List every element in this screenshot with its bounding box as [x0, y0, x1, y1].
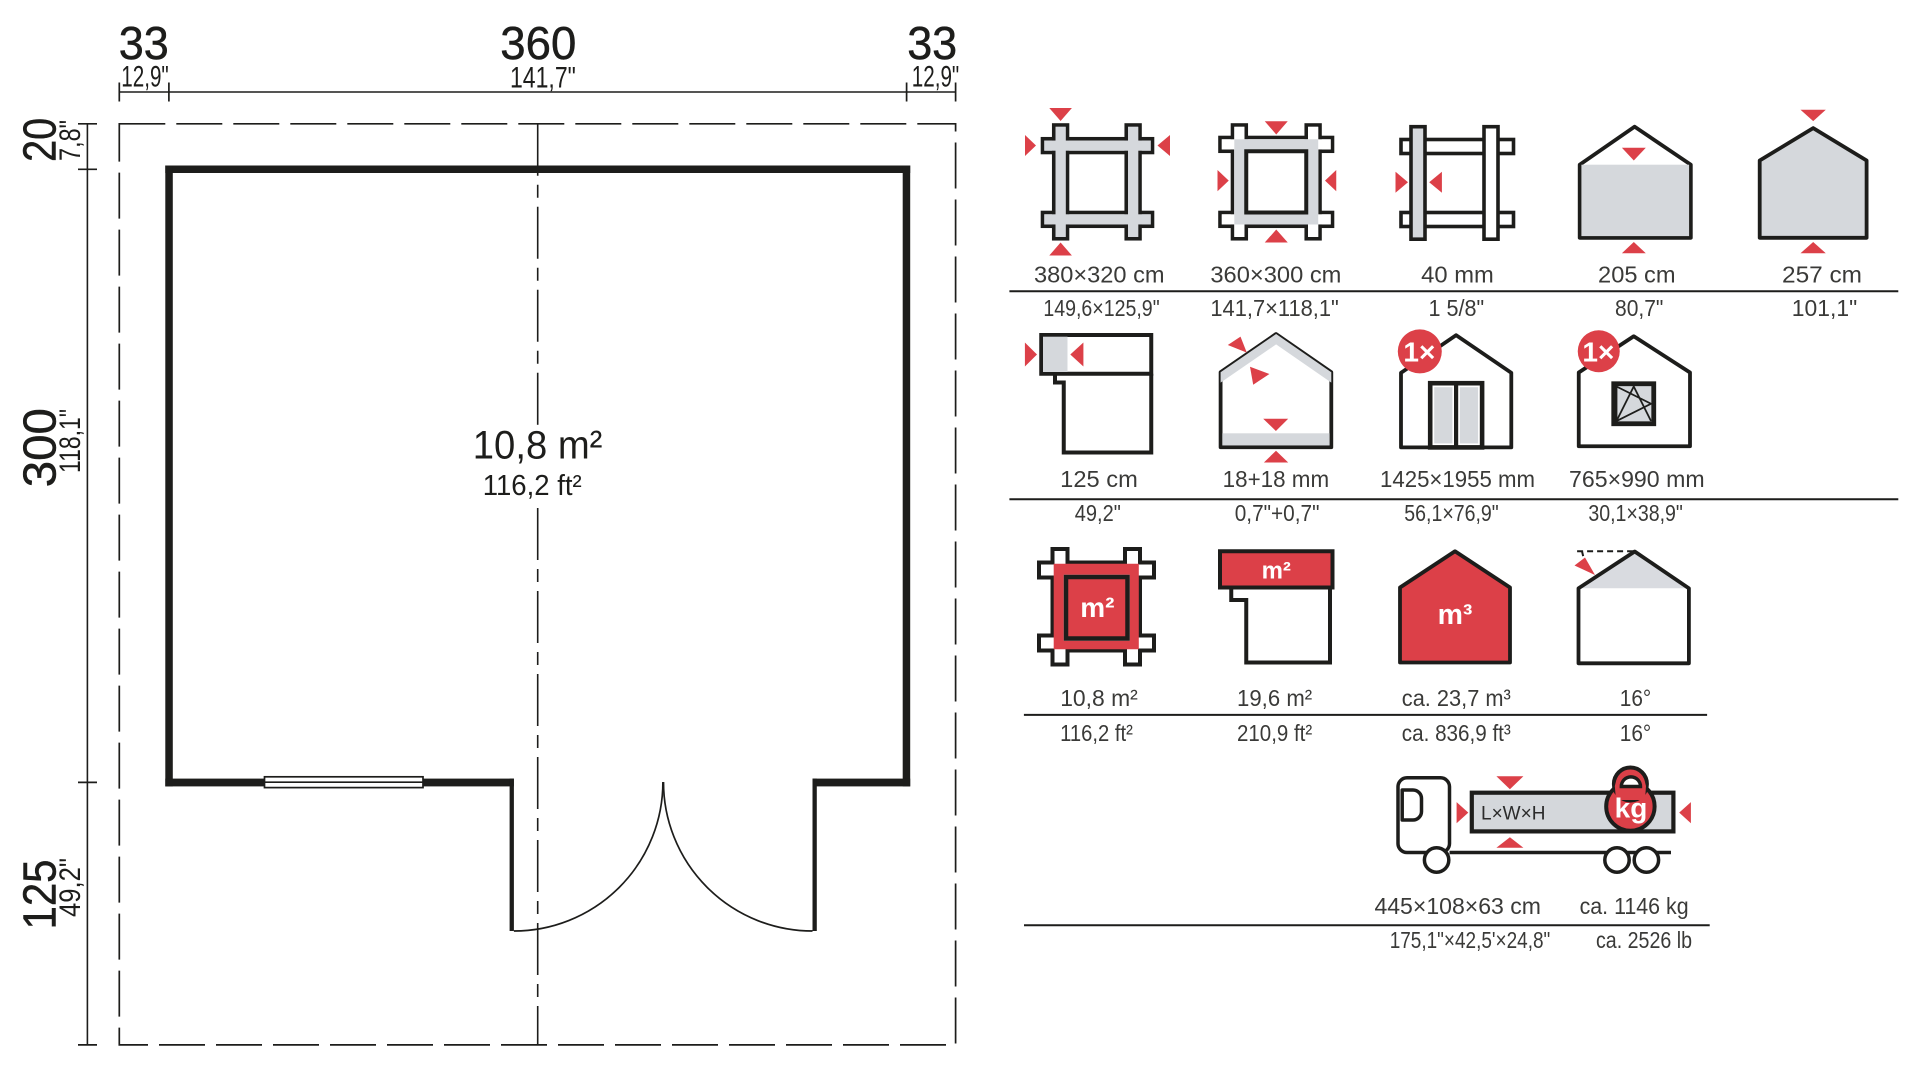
- svg-text:16°: 16°: [1620, 720, 1652, 746]
- svg-text:380×320 cm: 380×320 cm: [1034, 261, 1165, 287]
- svg-text:141,7×118,1": 141,7×118,1": [1210, 295, 1338, 321]
- svg-text:40 mm: 40 mm: [1421, 261, 1494, 287]
- svg-text:56,1×76,9": 56,1×76,9": [1404, 500, 1499, 526]
- svg-text:210,9 ft²: 210,9 ft²: [1237, 720, 1312, 746]
- svg-text:18+18 mm: 18+18 mm: [1223, 466, 1330, 492]
- svg-text:80,7": 80,7": [1615, 295, 1663, 321]
- svg-text:445×108×63 cm: 445×108×63 cm: [1374, 893, 1541, 919]
- svg-text:765×990 mm: 765×990 mm: [1569, 466, 1705, 492]
- svg-text:49,2": 49,2": [54, 858, 87, 917]
- svg-text:16°: 16°: [1620, 685, 1652, 711]
- svg-text:ca. 836,9 ft³: ca. 836,9 ft³: [1402, 720, 1511, 746]
- svg-text:ca. 2526 lb: ca. 2526 lb: [1596, 927, 1692, 953]
- svg-text:10,8 m²: 10,8 m²: [1060, 685, 1138, 711]
- svg-text:m²: m²: [1080, 592, 1114, 623]
- svg-text:116,2 ft²: 116,2 ft²: [483, 470, 582, 502]
- svg-text:101,1": 101,1": [1792, 295, 1857, 321]
- svg-text:10,8 m²: 10,8 m²: [473, 424, 603, 468]
- svg-text:141,7": 141,7": [510, 62, 576, 95]
- svg-text:L×W×H: L×W×H: [1481, 804, 1545, 825]
- svg-text:1×: 1×: [1582, 336, 1614, 367]
- svg-text:0,7"+0,7": 0,7"+0,7": [1235, 500, 1320, 526]
- svg-text:30,1×38,9": 30,1×38,9": [1588, 500, 1683, 526]
- svg-text:ca. 1146 kg: ca. 1146 kg: [1580, 893, 1689, 919]
- svg-text:m²: m²: [1262, 558, 1291, 585]
- svg-text:1×: 1×: [1403, 337, 1435, 368]
- svg-text:118,1": 118,1": [54, 409, 87, 473]
- svg-text:ca. 23,7 m³: ca. 23,7 m³: [1402, 685, 1511, 711]
- svg-text:7,8": 7,8": [54, 120, 87, 161]
- svg-text:49,2": 49,2": [1075, 500, 1121, 526]
- svg-text:kg: kg: [1615, 793, 1648, 824]
- svg-text:175,1"×42,5'×24,8": 175,1"×42,5'×24,8": [1390, 927, 1551, 953]
- svg-text:12,9": 12,9": [121, 61, 169, 94]
- svg-text:m³: m³: [1438, 599, 1473, 631]
- svg-text:19,6 m²: 19,6 m²: [1237, 685, 1312, 711]
- svg-text:12,9": 12,9": [912, 61, 960, 94]
- svg-text:1 5/8": 1 5/8": [1428, 295, 1484, 321]
- svg-text:1425×1955 mm: 1425×1955 mm: [1380, 466, 1535, 492]
- svg-text:149,6×125,9": 149,6×125,9": [1043, 295, 1159, 321]
- svg-text:116,2 ft²: 116,2 ft²: [1060, 720, 1133, 746]
- svg-text:125 cm: 125 cm: [1060, 466, 1138, 492]
- svg-text:257 cm: 257 cm: [1782, 261, 1862, 287]
- svg-text:360×300 cm: 360×300 cm: [1210, 261, 1341, 287]
- svg-text:205 cm: 205 cm: [1598, 261, 1676, 287]
